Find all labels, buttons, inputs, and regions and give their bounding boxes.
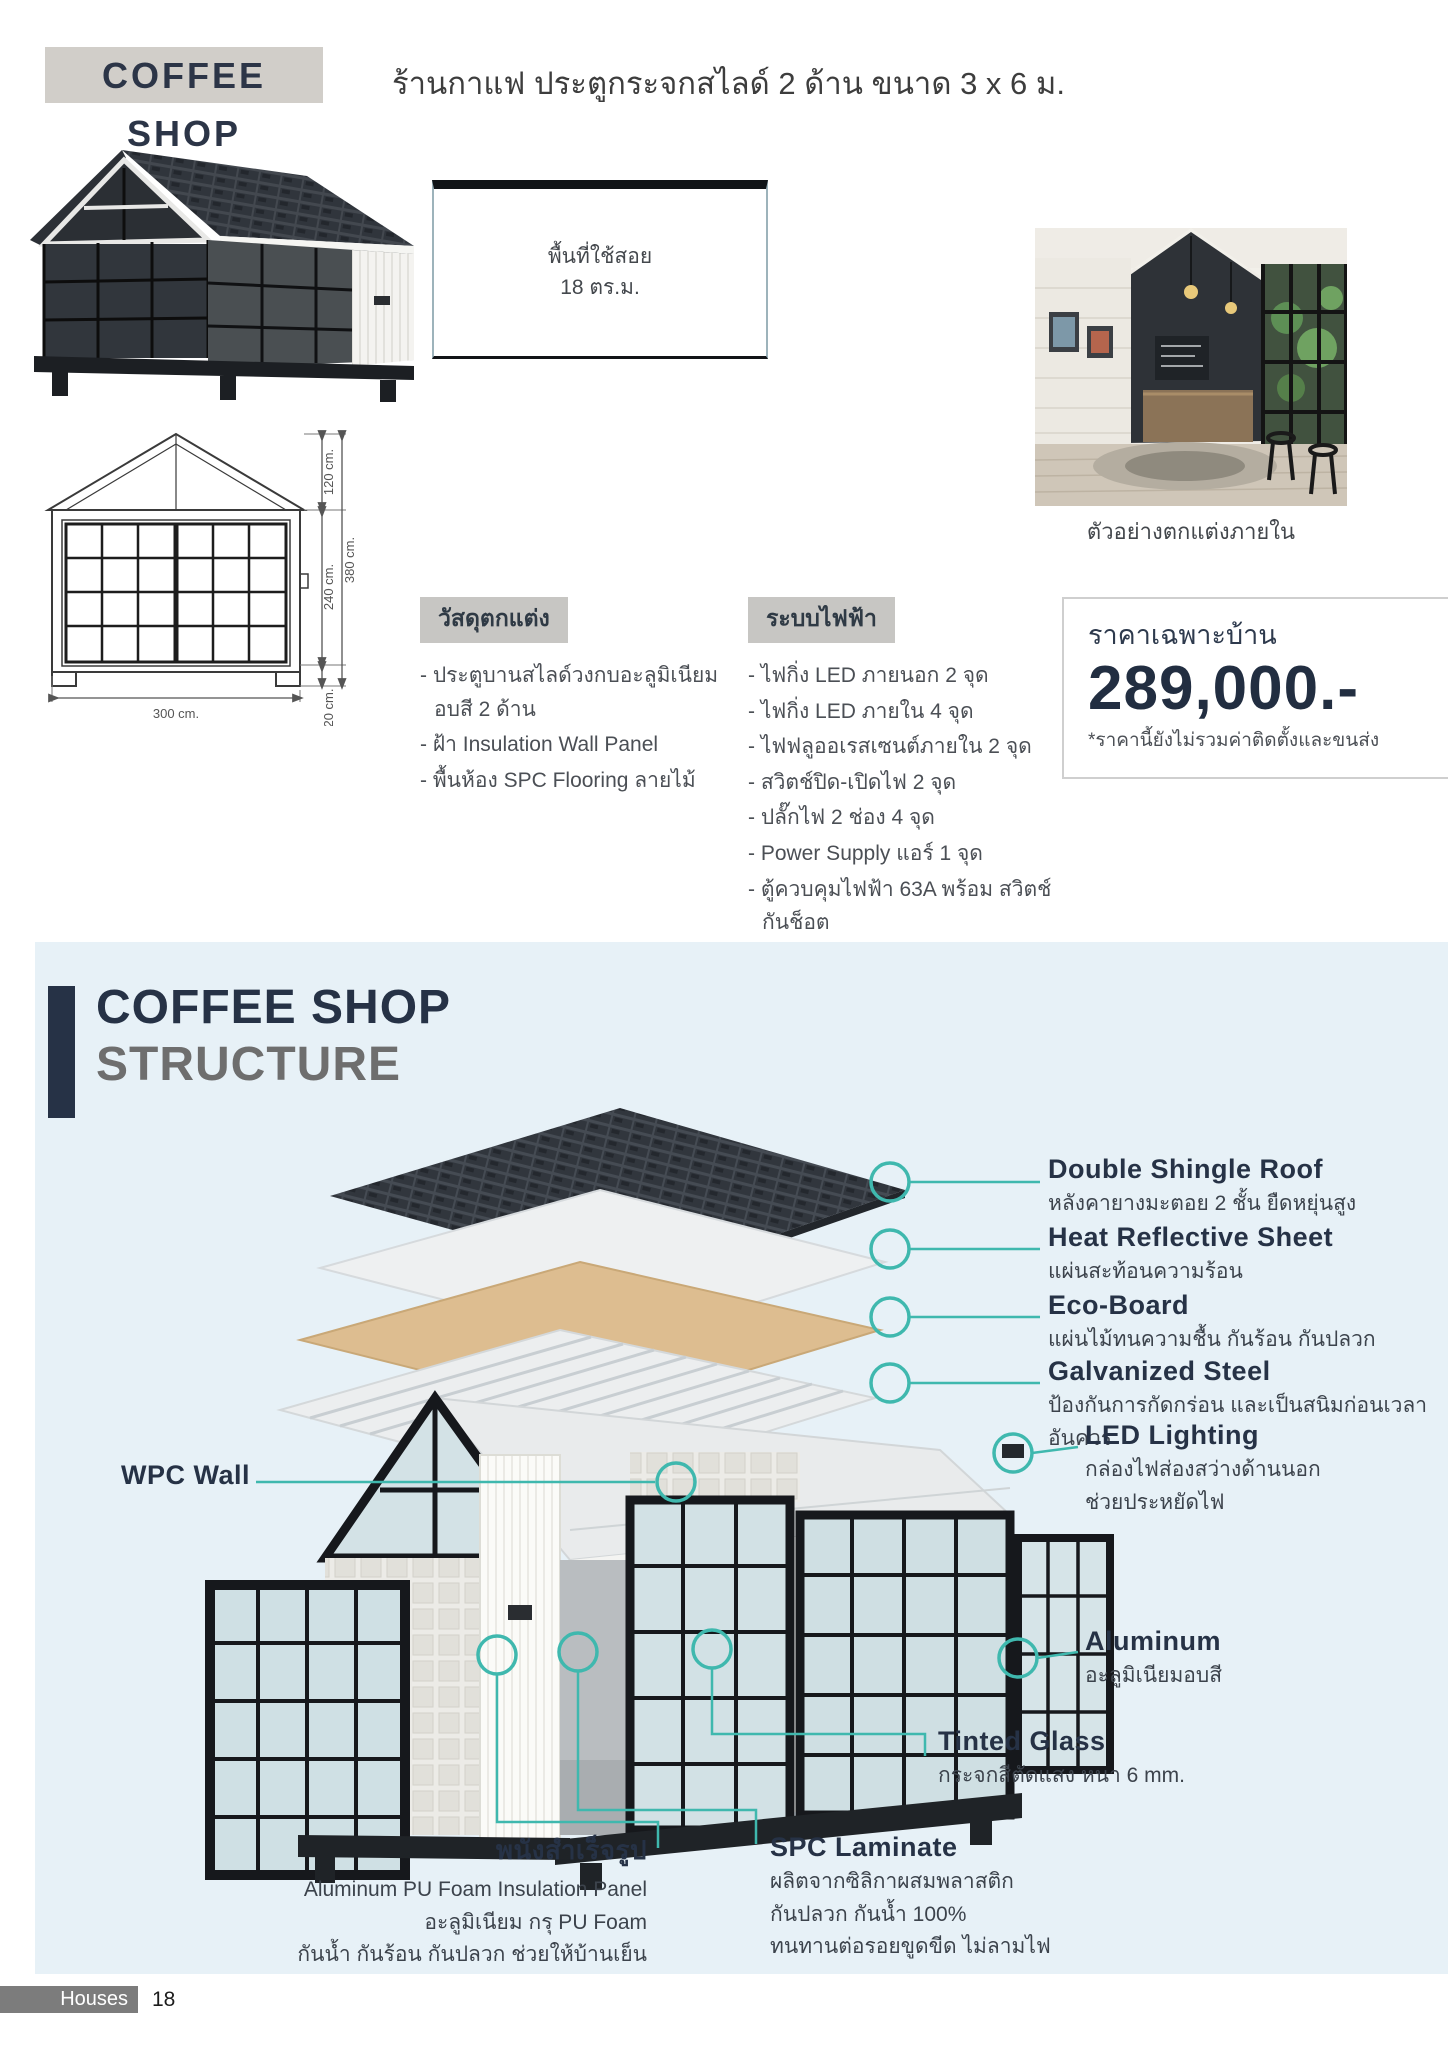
- page-subtitle: ร้านกาแฟ ประตูกระจกสไลด์ 2 ด้าน ขนาด 3 x…: [392, 58, 1065, 108]
- callout-heat-reflective-sheet: Heat Reflective Sheet แผ่นสะท้อนความร้อน: [1048, 1222, 1333, 1289]
- callout-title: Aluminum: [1085, 1626, 1222, 1657]
- price-value: 289,000.-: [1088, 656, 1428, 723]
- dim-wall-height: 240 cm.: [321, 564, 336, 610]
- callout-wpc-wall: WPC Wall: [55, 1460, 250, 1491]
- callout-desc: Aluminum PU Foam Insulation Panel อะลูมิ…: [275, 1874, 647, 1972]
- price-box: ราคาเฉพาะบ้าน 289,000.- *ราคานี้ยังไม่รว…: [1062, 597, 1448, 779]
- floor-plan: พื้นที่ใช้สอย 18 ตร.ม.: [432, 180, 768, 359]
- list-item: - สวิตช์ปิด-เปิดไฟ 2 จุด: [748, 766, 1063, 800]
- page-title: COFFEE SHOP: [45, 47, 323, 103]
- list-item: - ฝ้า Insulation Wall Panel: [420, 728, 742, 762]
- callout-circle-heat-sheet: [871, 1230, 909, 1268]
- electrical-section: ระบบไฟฟ้า - ไฟกิ่ง LED ภายนอก 2 จุด - ไฟ…: [748, 597, 1063, 977]
- interior-photo: [1035, 228, 1347, 506]
- callout-title: Tinted Glass: [938, 1726, 1185, 1757]
- callout-desc: ผลิตจากซิลิกาผสมพลาสติก กันปลวก กันน้ำ 1…: [770, 1866, 1051, 1964]
- callout-circle-spc: [559, 1633, 597, 1671]
- callout-circle-wall-panel: [478, 1636, 516, 1674]
- interior-photo-caption: ตัวอย่างตกแต่งภายใน: [1035, 514, 1347, 549]
- electrical-list: - ไฟกิ่ง LED ภายนอก 2 จุด - ไฟกิ่ง LED ภ…: [748, 659, 1063, 975]
- list-item: - ไฟฟลูออเรสเซนต์ภายใน 2 จุด: [748, 730, 1063, 764]
- callout-spc-laminate: SPC Laminate ผลิตจากซิลิกาผสมพลาสติก กัน…: [770, 1832, 1051, 1964]
- dim-base-height: 20 cm.: [321, 688, 336, 726]
- list-item: - พื้นห้อง SPC Flooring ลายไม้: [420, 764, 742, 798]
- exterior-render-illustration: [22, 128, 420, 418]
- callout-desc: แผ่นสะท้อนความร้อน: [1048, 1256, 1333, 1289]
- callout-title: SPC Laminate: [770, 1832, 1051, 1863]
- dim-gable-height: 120 cm.: [321, 449, 336, 495]
- callout-double-shingle-roof: Double Shingle Roof หลังคายางมะตอย 2 ชั้…: [1048, 1154, 1356, 1221]
- callout-circle-galvanized: [871, 1364, 909, 1402]
- callout-circle-led: [994, 1434, 1032, 1472]
- callout-circle-roof: [871, 1163, 909, 1201]
- callout-desc: กระจกสีตัดแสง หนา 6 mm.: [938, 1760, 1185, 1793]
- dim-total-height: 380 cm.: [342, 537, 357, 583]
- callout-title: Heat Reflective Sheet: [1048, 1222, 1333, 1253]
- list-item: - Power Supply แอร์ 1 จุด: [748, 837, 1063, 871]
- callout-title: Galvanized Steel: [1048, 1356, 1448, 1387]
- list-item: - ตู้ควบคุมไฟฟ้า 63A พร้อม สวิตช์กันช็อต: [748, 873, 1063, 940]
- callout-aluminum: Aluminum อะลูมิเนียมอบสี: [1085, 1626, 1222, 1693]
- callout-led-lighting: LED Lighting กล่องไฟส่องสว่างด้านนอก ช่ว…: [1085, 1420, 1321, 1519]
- dim-width: 300 cm.: [153, 706, 199, 721]
- floor-plan-area-value: 18 ตร.ม.: [560, 273, 640, 303]
- footer-section-label: Houses: [0, 1986, 138, 2013]
- list-item: - ไฟกิ่ง LED ภายนอก 2 จุด: [748, 659, 1063, 693]
- list-item: - ไฟกิ่ง LED ภายใน 4 จุด: [748, 695, 1063, 729]
- callout-desc: หลังคายางมะตอย 2 ชั้น ยืดหยุ่นสูง: [1048, 1188, 1356, 1221]
- elevation-drawing: 120 cm. 240 cm. 20 cm. 380 cm. 300 cm.: [36, 424, 360, 726]
- footer-page-number: 18: [152, 1988, 175, 2012]
- callout-title: LED Lighting: [1085, 1420, 1321, 1451]
- materials-section: วัสดุตกแต่ง - ประตูบานสไลด์วงกบอะลูมิเนี…: [420, 597, 742, 799]
- callout-desc: แผ่นไม้ทนความชื้น กันร้อน กันปลวก: [1048, 1324, 1376, 1357]
- callout-eco-board: Eco-Board แผ่นไม้ทนความชื้น กันร้อน กันป…: [1048, 1290, 1376, 1357]
- callout-circle-aluminum: [999, 1639, 1037, 1677]
- callout-desc: กล่องไฟส่องสว่างด้านนอก ช่วยประหยัดไฟ: [1085, 1454, 1321, 1519]
- callout-tinted-glass: Tinted Glass กระจกสีตัดแสง หนา 6 mm.: [938, 1726, 1185, 1793]
- materials-title: วัสดุตกแต่ง: [420, 597, 568, 643]
- price-label: ราคาเฉพาะบ้าน: [1088, 613, 1428, 656]
- callout-circle-wpc: [657, 1463, 695, 1501]
- floor-plan-area-label: พื้นที่ใช้สอย: [548, 242, 652, 272]
- callout-wall-panel: พนังสำเร็จรูป Aluminum PU Foam Insulatio…: [275, 1830, 647, 1972]
- callout-desc: อะลูมิเนียมอบสี: [1085, 1660, 1222, 1693]
- callout-title: Eco-Board: [1048, 1290, 1376, 1321]
- price-note: *ราคานี้ยังไม่รวมค่าติดตั้งและขนส่ง: [1088, 725, 1428, 755]
- callout-circle-tinted-glass: [693, 1630, 731, 1668]
- callout-title: Double Shingle Roof: [1048, 1154, 1356, 1185]
- callout-title: พนังสำเร็จรูป: [275, 1830, 647, 1871]
- list-item: - ปลั๊กไฟ 2 ช่อง 4 จุด: [748, 801, 1063, 835]
- materials-list: - ประตูบานสไลด์วงกบอะลูมิเนียมอบสี 2 ด้า…: [420, 659, 742, 797]
- electrical-title: ระบบไฟฟ้า: [748, 597, 895, 643]
- callout-title: WPC Wall: [55, 1460, 250, 1491]
- list-item: - ประตูบานสไลด์วงกบอะลูมิเนียมอบสี 2 ด้า…: [420, 659, 742, 726]
- catalog-page: COFFEE SHOP ร้านกาแฟ ประตูกระจกสไลด์ 2 ด…: [0, 0, 1448, 2048]
- callout-circle-eco-board: [871, 1298, 909, 1336]
